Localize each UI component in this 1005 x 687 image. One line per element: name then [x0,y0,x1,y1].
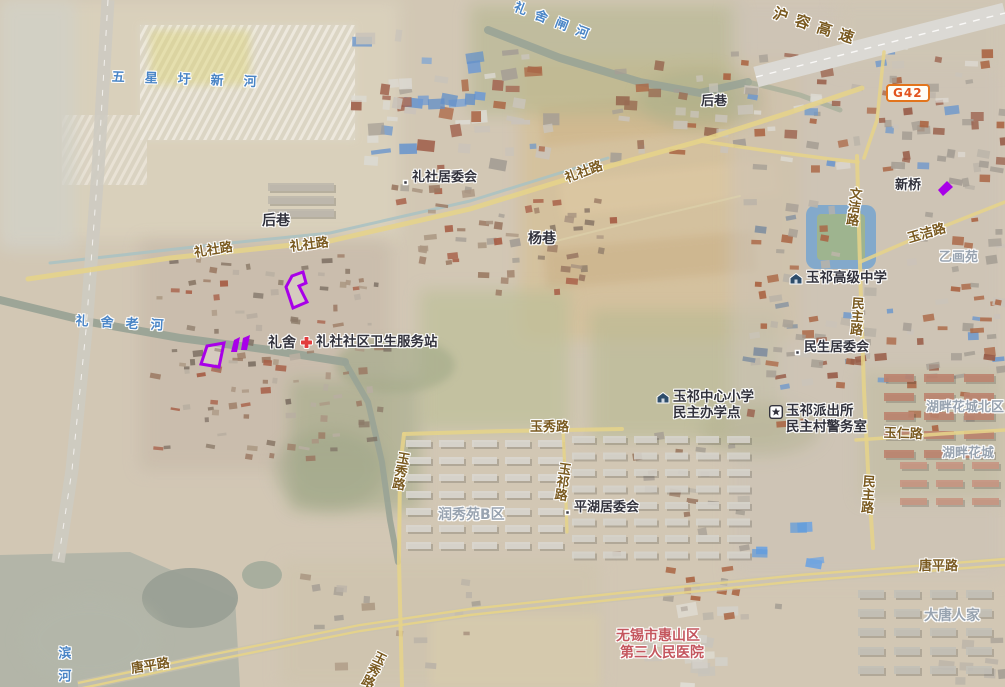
huishan-third-peoples-hospital-label-line-1: 无锡市惠山区 [616,628,704,645]
tangping-road-label-east: 唐平路 [919,559,958,574]
yuxiu-road-label-vertical: 玉秀路 [388,450,410,491]
yuqi-central-primary-school-poi-line-2: 民主办学点 [673,406,754,422]
hupan-huacheng-north-estate-label-text: 湖畔花城北区 [926,400,1004,415]
runxiuyuan-b-estate-label-text: 润秀苑B区 [438,507,505,523]
houxiang-village-poi-west-text: 后巷 [262,213,290,229]
yuxiu-road-label-south: 玉秀路 [357,648,388,687]
huishan-third-peoples-hospital-label: 无锡市惠山区第三人民医院 [616,628,704,661]
yuqi-central-primary-school-poi[interactable]: 玉祁中心小学民主办学点 [656,390,754,422]
houxiang-village-poi-north[interactable]: 后巷 [701,94,727,109]
binhe-river-label-text: 滨河 [55,646,70,687]
yuqi-central-primary-school-poi-line-1: 玉祁中心小学 [673,390,754,406]
pinghu-residents-committee-poi-text: 平湖居委会 [574,500,639,515]
hupan-huacheng-estate-label: 湖畔花城 [942,446,994,461]
yuqi-police-station-poi-line-2: 民主村警务室 [786,420,867,436]
map-canvas[interactable]: 五星圩新河礼舍老河礼舍闸河滨河沪容高速礼社路礼社路礼社路玉洁路文洁路民主路民主路… [0,0,1005,687]
lishe-community-health-station-poi[interactable]: 礼社社区卫生服务站 [300,335,438,354]
wuxingwei-xinhe-river-label-text: 五星圩新河 [111,70,276,91]
minzhu-road-label-north-text: 民主路 [847,296,865,336]
hupan-huacheng-north-estate-label: 湖畔花城北区 [926,400,1004,415]
yihuayuan-estate-label: 乙画苑 [939,250,978,265]
yuxiu-road-label-east-text: 玉秀路 [530,420,569,435]
lishe-road-label-west: 礼社路 [193,240,234,261]
lishe-road-label-east-text: 礼社路 [563,159,605,186]
lishe-village-poi[interactable]: 礼舍 [268,335,296,352]
tangping-road-label-east-text: 唐平路 [919,559,958,574]
lishe-road-label-east: 礼社路 [563,159,605,187]
yangxiang-village-poi-text: 杨巷 [528,231,556,247]
hurong-expressway-label: 沪容高速 [771,5,864,50]
highway-shield-code: G42 [893,86,923,100]
dot-marker-icon [794,345,801,360]
yujie-road-label-text: 玉洁路 [906,221,948,246]
lishe-road-label-west-text: 礼社路 [193,240,234,261]
highway-shield-g42: G42 [886,84,930,102]
yuqi-road-label: 玉祁路 [551,461,572,502]
lishe-road-label-mid: 礼社路 [289,235,330,255]
yuqi-senior-high-school-poi[interactable]: 玉祁高级中学 [789,271,887,290]
yuqi-police-station-poi[interactable]: 玉祁派出所民主村警务室 [769,404,867,436]
lishe-residents-committee-poi-text: 礼社居委会 [412,170,477,185]
hurong-expressway-label-text: 沪容高速 [771,4,864,50]
lishe-zhahe-river-label: 礼舍闸河 [512,0,600,46]
houxiang-village-poi-north-text: 后巷 [701,94,727,109]
yuxiu-road-label-east: 玉秀路 [530,420,569,435]
lishe-residents-committee-poi[interactable]: 礼社居委会 [402,170,477,190]
yujie-road-label: 玉洁路 [906,221,948,246]
lishe-road-label-mid-text: 礼社路 [289,235,330,255]
minsheng-residents-committee-poi-text: 民生居委会 [804,340,869,355]
runxiuyuan-b-estate-label: 润秀苑B区 [438,507,505,524]
yuxiu-road-label-south-text: 玉秀路 [357,648,388,687]
binhe-river-label: 滨河 [55,646,70,687]
pinghu-residents-committee-poi[interactable]: 平湖居委会 [564,500,639,520]
yuren-road-label-text: 玉仁路 [883,426,923,442]
yangxiang-village-poi[interactable]: 杨巷 [528,231,556,248]
wenjie-road-label: 文洁路 [842,186,862,227]
tangping-road-label-west-text: 唐平路 [130,656,171,677]
xinqiao-poi[interactable]: 新桥 [895,178,921,193]
police-badge-icon [769,405,783,424]
lishe-laohe-river-label-text: 礼舍老河 [75,314,176,334]
lishe-laohe-river-label: 礼舍老河 [75,314,176,335]
school-icon [789,272,803,290]
minzhu-road-label-north: 民主路 [846,296,864,336]
wenjie-road-label-text: 文洁路 [843,186,863,227]
tangping-road-label-west: 唐平路 [130,656,171,677]
minzhu-road-label-south-text: 民主路 [858,474,876,514]
dot-marker-icon [564,505,571,520]
datang-renjia-estate-label-text: 大唐人家 [924,608,980,624]
yihuayuan-estate-label-text: 乙画苑 [939,250,978,265]
school-icon [656,391,670,409]
minzhu-road-label-south: 民主路 [857,474,875,514]
red-cross-icon [300,336,313,354]
yuxiu-road-label-vertical-text: 玉秀路 [389,450,411,491]
yuqi-police-station-poi-line-1: 玉祁派出所 [786,404,867,420]
xinqiao-poi-text: 新桥 [895,178,921,193]
yuqi-senior-high-school-poi-text: 玉祁高级中学 [806,271,887,287]
lishe-community-health-station-poi-text: 礼社社区卫生服务站 [316,335,438,351]
yuqi-road-label-text: 玉祁路 [551,461,571,502]
lishe-village-poi-text: 礼舍 [268,335,296,351]
datang-renjia-estate-label: 大唐人家 [924,608,980,625]
yuren-road-label: 玉仁路 [883,426,923,443]
dot-marker-icon [402,175,409,190]
wuxingwei-xinhe-river-label: 五星圩新河 [111,70,276,91]
map-labels-layer: 五星圩新河礼舍老河礼舍闸河滨河沪容高速礼社路礼社路礼社路玉洁路文洁路民主路民主路… [0,0,1005,687]
hupan-huacheng-estate-label-text: 湖畔花城 [942,446,994,461]
lishe-zhahe-river-label-text: 礼舍闸河 [512,0,600,46]
huishan-third-peoples-hospital-label-line-2: 第三人民医院 [620,645,704,662]
houxiang-village-poi-west[interactable]: 后巷 [262,213,290,230]
minsheng-residents-committee-poi[interactable]: 民生居委会 [794,340,869,360]
